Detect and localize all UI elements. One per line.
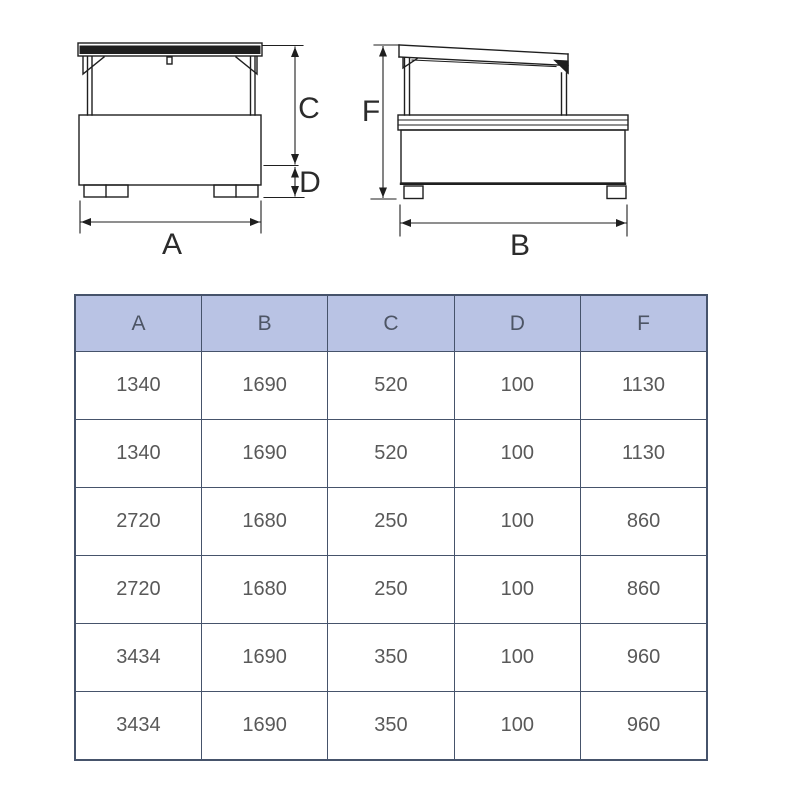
- table-row: 3434 1690 350 100 960: [75, 624, 707, 692]
- table-cell: 100: [454, 352, 580, 420]
- dim-label-c: C: [298, 92, 320, 125]
- table-cell: 1690: [201, 352, 327, 420]
- table-cell: 3434: [75, 624, 201, 692]
- table-cell: 1690: [201, 624, 327, 692]
- table-cell: 1680: [201, 488, 327, 556]
- table-row: 3434 1690 350 100 960: [75, 692, 707, 761]
- table-cell: 1130: [581, 420, 707, 488]
- side-view-drawing: [371, 45, 628, 236]
- table-cell: 860: [581, 488, 707, 556]
- table-cell: 100: [454, 556, 580, 624]
- table-cell: 1340: [75, 352, 201, 420]
- table-cell: 100: [454, 488, 580, 556]
- dim-label-f: F: [362, 95, 380, 128]
- table-cell: 960: [581, 692, 707, 761]
- table-cell: 100: [454, 420, 580, 488]
- table-cell: 1690: [201, 420, 327, 488]
- table-cell: 2720: [75, 556, 201, 624]
- table-cell: 2720: [75, 488, 201, 556]
- table-cell: 960: [581, 624, 707, 692]
- table-cell: 100: [454, 624, 580, 692]
- table-header-cell: B: [201, 295, 327, 352]
- table-cell: 1680: [201, 556, 327, 624]
- table-row: 1340 1690 520 100 1130: [75, 420, 707, 488]
- table-header-cell: F: [581, 295, 707, 352]
- table-cell: 1340: [75, 420, 201, 488]
- technical-drawings: A C D B F: [0, 0, 800, 280]
- table-cell: 860: [581, 556, 707, 624]
- table-cell: 350: [328, 692, 454, 761]
- dim-label-b: B: [510, 229, 530, 262]
- front-view-drawing: [78, 43, 304, 233]
- table-cell: 350: [328, 624, 454, 692]
- table-cell: 1690: [201, 692, 327, 761]
- table-row: 2720 1680 250 100 860: [75, 556, 707, 624]
- table-cell: 1130: [581, 352, 707, 420]
- dim-label-a: A: [162, 228, 182, 261]
- table-header-cell: C: [328, 295, 454, 352]
- table-cell: 520: [328, 420, 454, 488]
- table-cell: 100: [454, 692, 580, 761]
- table-header-cell: D: [454, 295, 580, 352]
- table-row: 2720 1680 250 100 860: [75, 488, 707, 556]
- page: A C D B F A B C D F 1340 1690 520 100 11…: [0, 0, 800, 800]
- table-header-cell: A: [75, 295, 201, 352]
- dimension-d: [264, 168, 304, 198]
- table-header-row: A B C D F: [75, 295, 707, 352]
- spec-table: A B C D F 1340 1690 520 100 1130 1340 16…: [74, 294, 708, 761]
- table-cell: 3434: [75, 692, 201, 761]
- table-cell: 520: [328, 352, 454, 420]
- dim-label-d: D: [299, 166, 321, 199]
- dimension-c: [263, 46, 303, 166]
- table-cell: 250: [328, 488, 454, 556]
- table-row: 1340 1690 520 100 1130: [75, 352, 707, 420]
- table-cell: 250: [328, 556, 454, 624]
